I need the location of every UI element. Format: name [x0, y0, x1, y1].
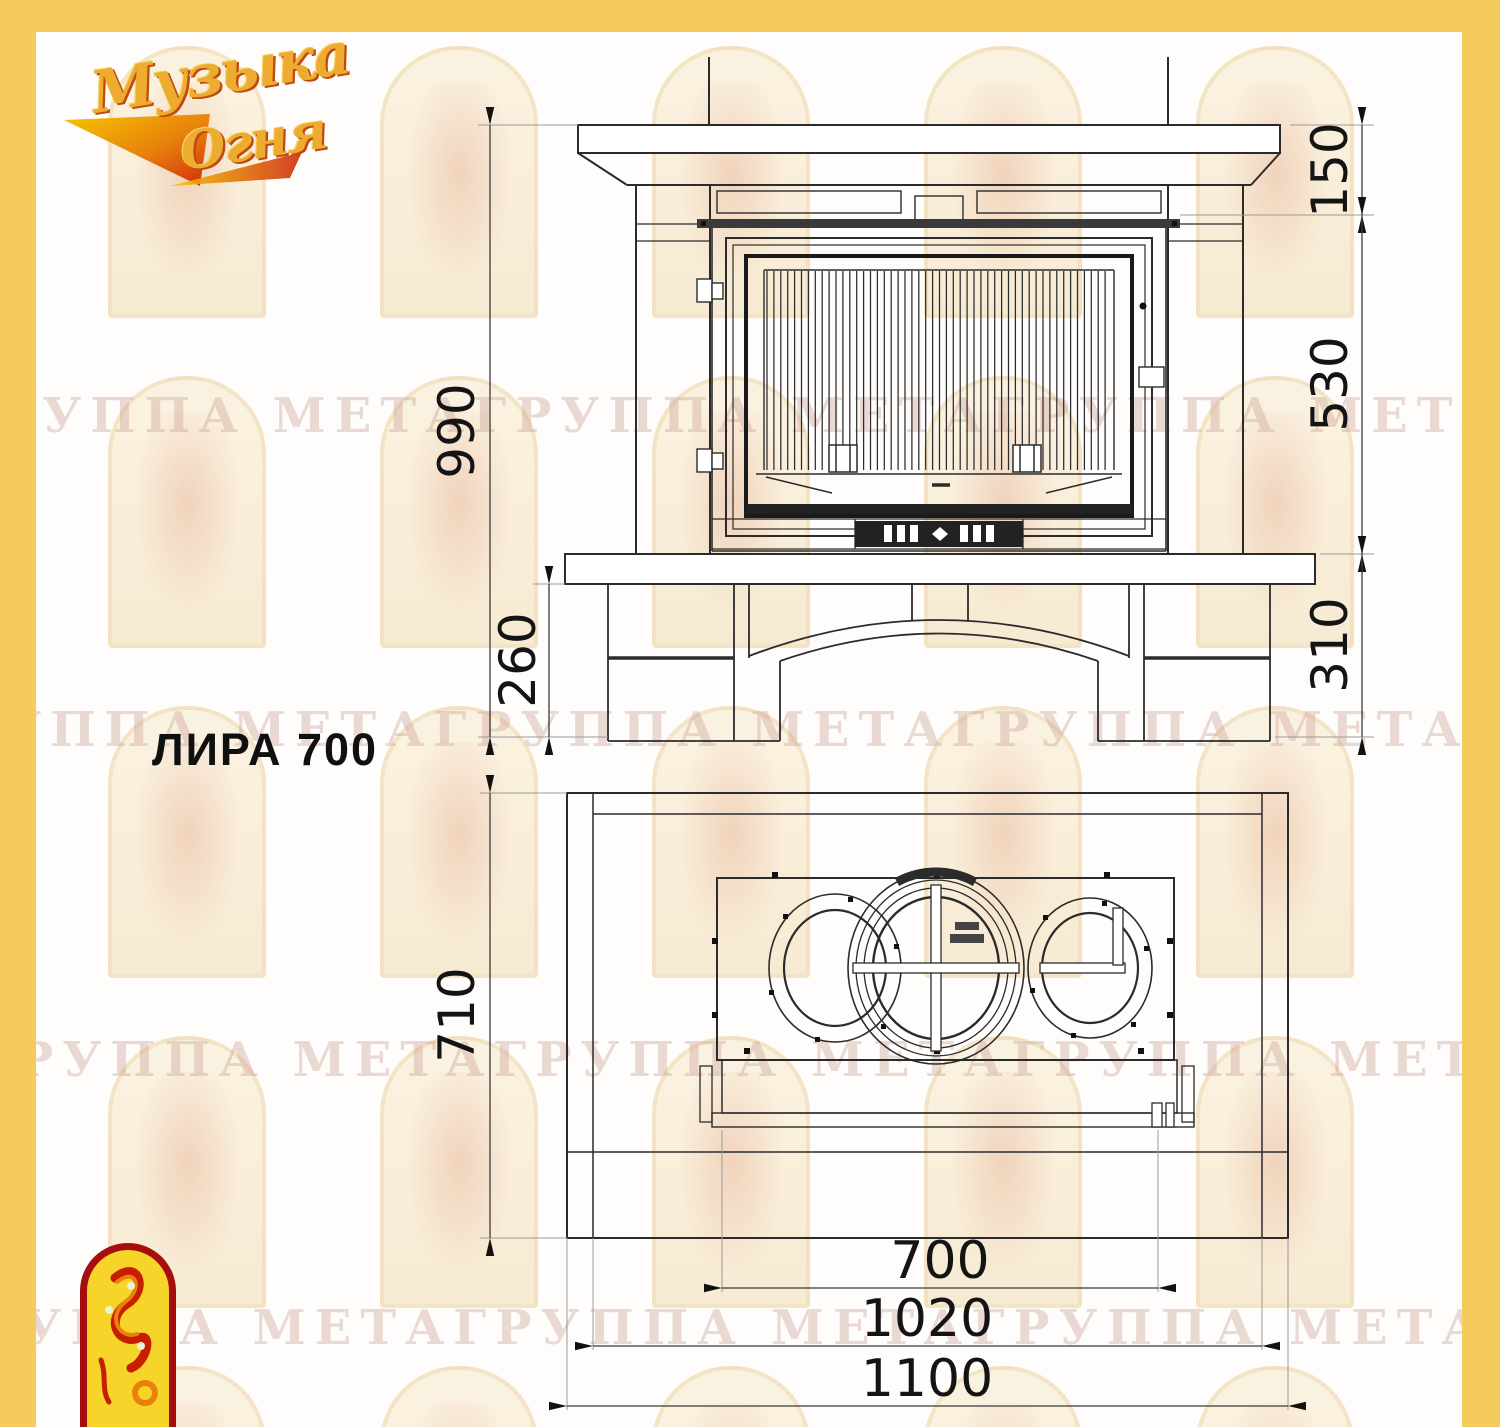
dim-total-width: 1100 [861, 1349, 993, 1409]
insert-top-band [697, 219, 1180, 228]
right-outlet-circle [1028, 898, 1152, 1038]
base-legs [608, 584, 1270, 741]
model-title: ЛИРА 700 [152, 724, 378, 776]
front-view-dimensions: 990 260 150 530 310 [428, 122, 1374, 737]
meta-salamander-logo [80, 1243, 176, 1427]
frame-left-band [0, 0, 36, 1427]
frieze-center-block [915, 196, 963, 221]
flue-circle [848, 872, 1024, 1064]
front-view-drawing [565, 57, 1315, 741]
hearth-slab [565, 554, 1315, 584]
page: ГРУППА МЕТАГРУППА МЕТАГРУППА МЕТА ГРУППА… [0, 0, 1500, 1427]
dim-body-width: 1020 [861, 1289, 993, 1349]
base-arch [749, 620, 1129, 656]
dim-depth: 710 [428, 967, 486, 1062]
frame-right-band [1462, 0, 1500, 1427]
mantel-shelf [578, 125, 1280, 153]
mantel-chamfer [578, 153, 1280, 185]
dim-base-height: 260 [489, 612, 547, 707]
dim-opening-width: 700 [890, 1231, 989, 1291]
plan-inner-walls [593, 793, 1262, 1238]
dim-firebox-height: 530 [1301, 336, 1359, 431]
front-edge-strip [712, 1113, 1194, 1127]
technical-drawing: 990 260 150 530 310 [0, 0, 1500, 1427]
dim-hearth-height: 310 [1301, 597, 1359, 692]
dim-mantel-offset: 150 [1301, 122, 1359, 217]
door-ribs [767, 271, 1105, 470]
front-chamber-band [722, 1060, 1177, 1113]
salamander-icon [87, 1250, 169, 1427]
brand-logo: Музыка Огня [52, 28, 352, 208]
side-bracket-left [700, 1066, 712, 1122]
plan-view-drawing [567, 793, 1288, 1238]
plan-outer-rect [567, 793, 1288, 1238]
frieze-panel-left [717, 191, 901, 213]
door-bottom-band [746, 504, 1132, 514]
dim-total-height: 990 [428, 383, 486, 478]
frieze-panel-right [977, 191, 1161, 213]
door-feet [829, 445, 1041, 472]
plan-view-dimensions: 710 700 1020 1100 [428, 793, 1288, 1410]
chimney-pipes [709, 57, 1168, 125]
